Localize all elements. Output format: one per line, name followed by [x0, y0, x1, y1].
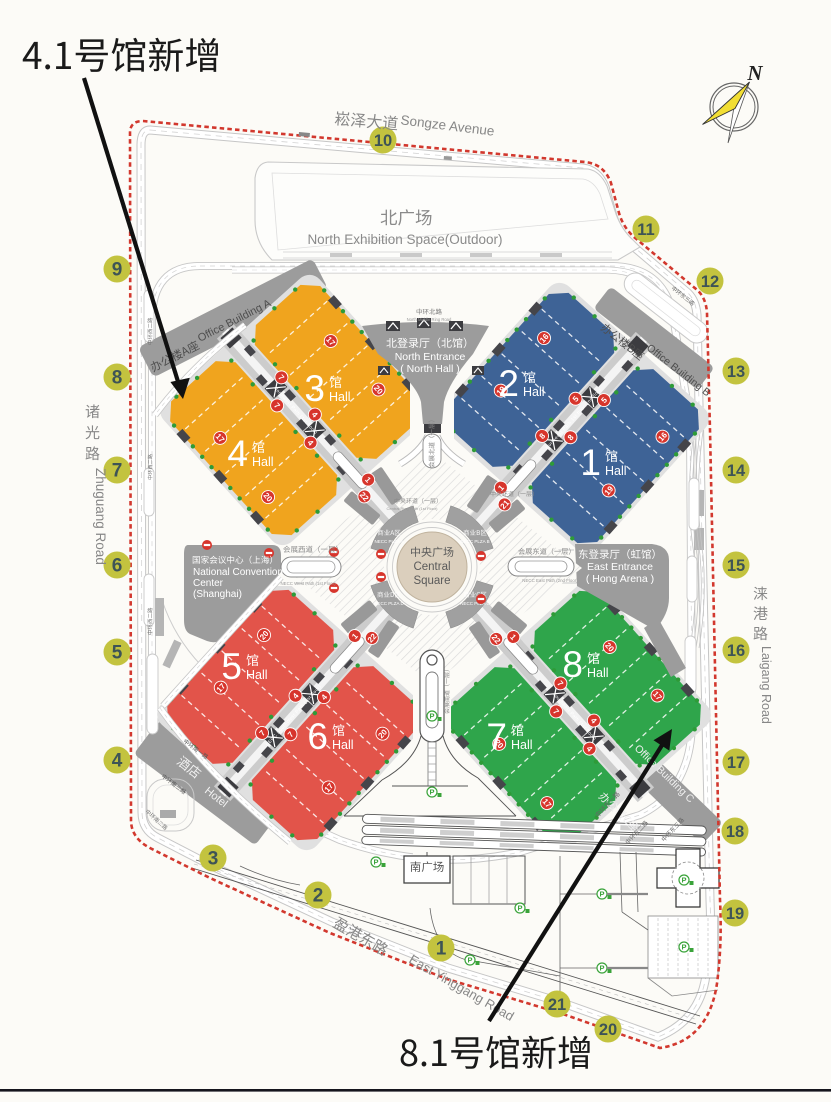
svg-text:Central Ring Path (1st Floor): Central Ring Path (1st Floor)	[387, 506, 439, 511]
svg-text:( Hong Arena ): ( Hong Arena )	[586, 573, 654, 585]
svg-text:20: 20	[599, 1021, 617, 1039]
svg-text:National Convention: National Convention	[193, 567, 283, 578]
svg-text:(Shanghai): (Shanghai)	[193, 589, 242, 600]
svg-text:NECC PLZA A: NECC PLZA A	[374, 539, 403, 544]
svg-text:17: 17	[727, 754, 745, 772]
svg-text:3: 3	[208, 849, 219, 870]
svg-text:14: 14	[727, 462, 746, 480]
svg-text:11: 11	[637, 221, 654, 239]
svg-text:15: 15	[727, 557, 745, 575]
svg-text:8: 8	[562, 644, 583, 685]
svg-text:N: N	[746, 61, 763, 85]
svg-text:P: P	[517, 904, 522, 913]
svg-text:8: 8	[112, 368, 123, 389]
svg-text:16: 16	[727, 642, 745, 660]
svg-text:Hall: Hall	[523, 385, 545, 399]
svg-text:( North Hall ): ( North Hall )	[400, 363, 460, 375]
svg-text:5: 5	[221, 646, 242, 687]
svg-text:9: 9	[112, 260, 123, 281]
svg-text:12: 12	[701, 273, 719, 291]
svg-text:2: 2	[313, 886, 324, 907]
svg-text:P: P	[467, 956, 472, 965]
svg-text:Hall: Hall	[587, 666, 609, 680]
svg-text:Hall: Hall	[246, 668, 268, 682]
svg-text:6: 6	[112, 556, 123, 577]
svg-text:7: 7	[486, 716, 507, 757]
svg-text:NECC East Path (2nd Floor): NECC East Path (2nd Floor)	[522, 578, 578, 583]
svg-text:2: 2	[498, 363, 519, 404]
svg-text:P: P	[429, 712, 434, 721]
svg-text:NECC PLZA B: NECC PLZA B	[460, 539, 489, 544]
svg-text:Hall: Hall	[329, 390, 351, 404]
svg-text:19: 19	[726, 905, 744, 923]
svg-text:P: P	[681, 876, 686, 885]
svg-text:1: 1	[580, 442, 601, 483]
svg-text:Central: Central	[413, 561, 450, 573]
svg-text:P: P	[373, 858, 378, 867]
svg-text:North Middle Ring Road: North Middle Ring Road	[407, 317, 452, 322]
svg-text:P: P	[599, 890, 604, 899]
svg-text:North Entrance: North Entrance	[395, 351, 466, 363]
svg-text:NECC West Path (1st Floor): NECC West Path (1st Floor)	[280, 581, 336, 586]
svg-text:Zhuguang Road: Zhuguang Road	[93, 468, 108, 565]
svg-text:Hall: Hall	[605, 464, 627, 478]
svg-text:13: 13	[727, 363, 745, 381]
svg-text:4: 4	[112, 751, 123, 772]
svg-text:5: 5	[112, 643, 123, 664]
svg-text:4: 4	[227, 433, 248, 474]
svg-text:Square: Square	[413, 575, 450, 587]
svg-text:P: P	[429, 788, 434, 797]
svg-text:Laigang Road: Laigang Road	[759, 646, 773, 724]
svg-text:North Exhibition Space(Outdoor: North Exhibition Space(Outdoor)	[307, 232, 502, 247]
svg-text:3: 3	[304, 368, 325, 409]
svg-text:NECC PLZA D: NECC PLZA D	[374, 601, 404, 606]
svg-text:P: P	[681, 943, 686, 952]
svg-text:Hall: Hall	[511, 738, 533, 752]
svg-text:Hall: Hall	[252, 455, 274, 469]
svg-text:18: 18	[726, 823, 744, 841]
svg-text:NECC PLZA C: NECC PLZA C	[460, 601, 490, 606]
svg-text:6: 6	[307, 716, 328, 757]
svg-text:East Entrance: East Entrance	[587, 561, 653, 573]
svg-text:7: 7	[112, 461, 123, 482]
svg-text:P: P	[599, 964, 604, 973]
svg-text:10: 10	[374, 132, 392, 150]
svg-text:Hall: Hall	[332, 738, 354, 752]
svg-text:21: 21	[548, 996, 566, 1014]
svg-text:1: 1	[436, 939, 447, 960]
svg-text:Center: Center	[193, 578, 224, 589]
